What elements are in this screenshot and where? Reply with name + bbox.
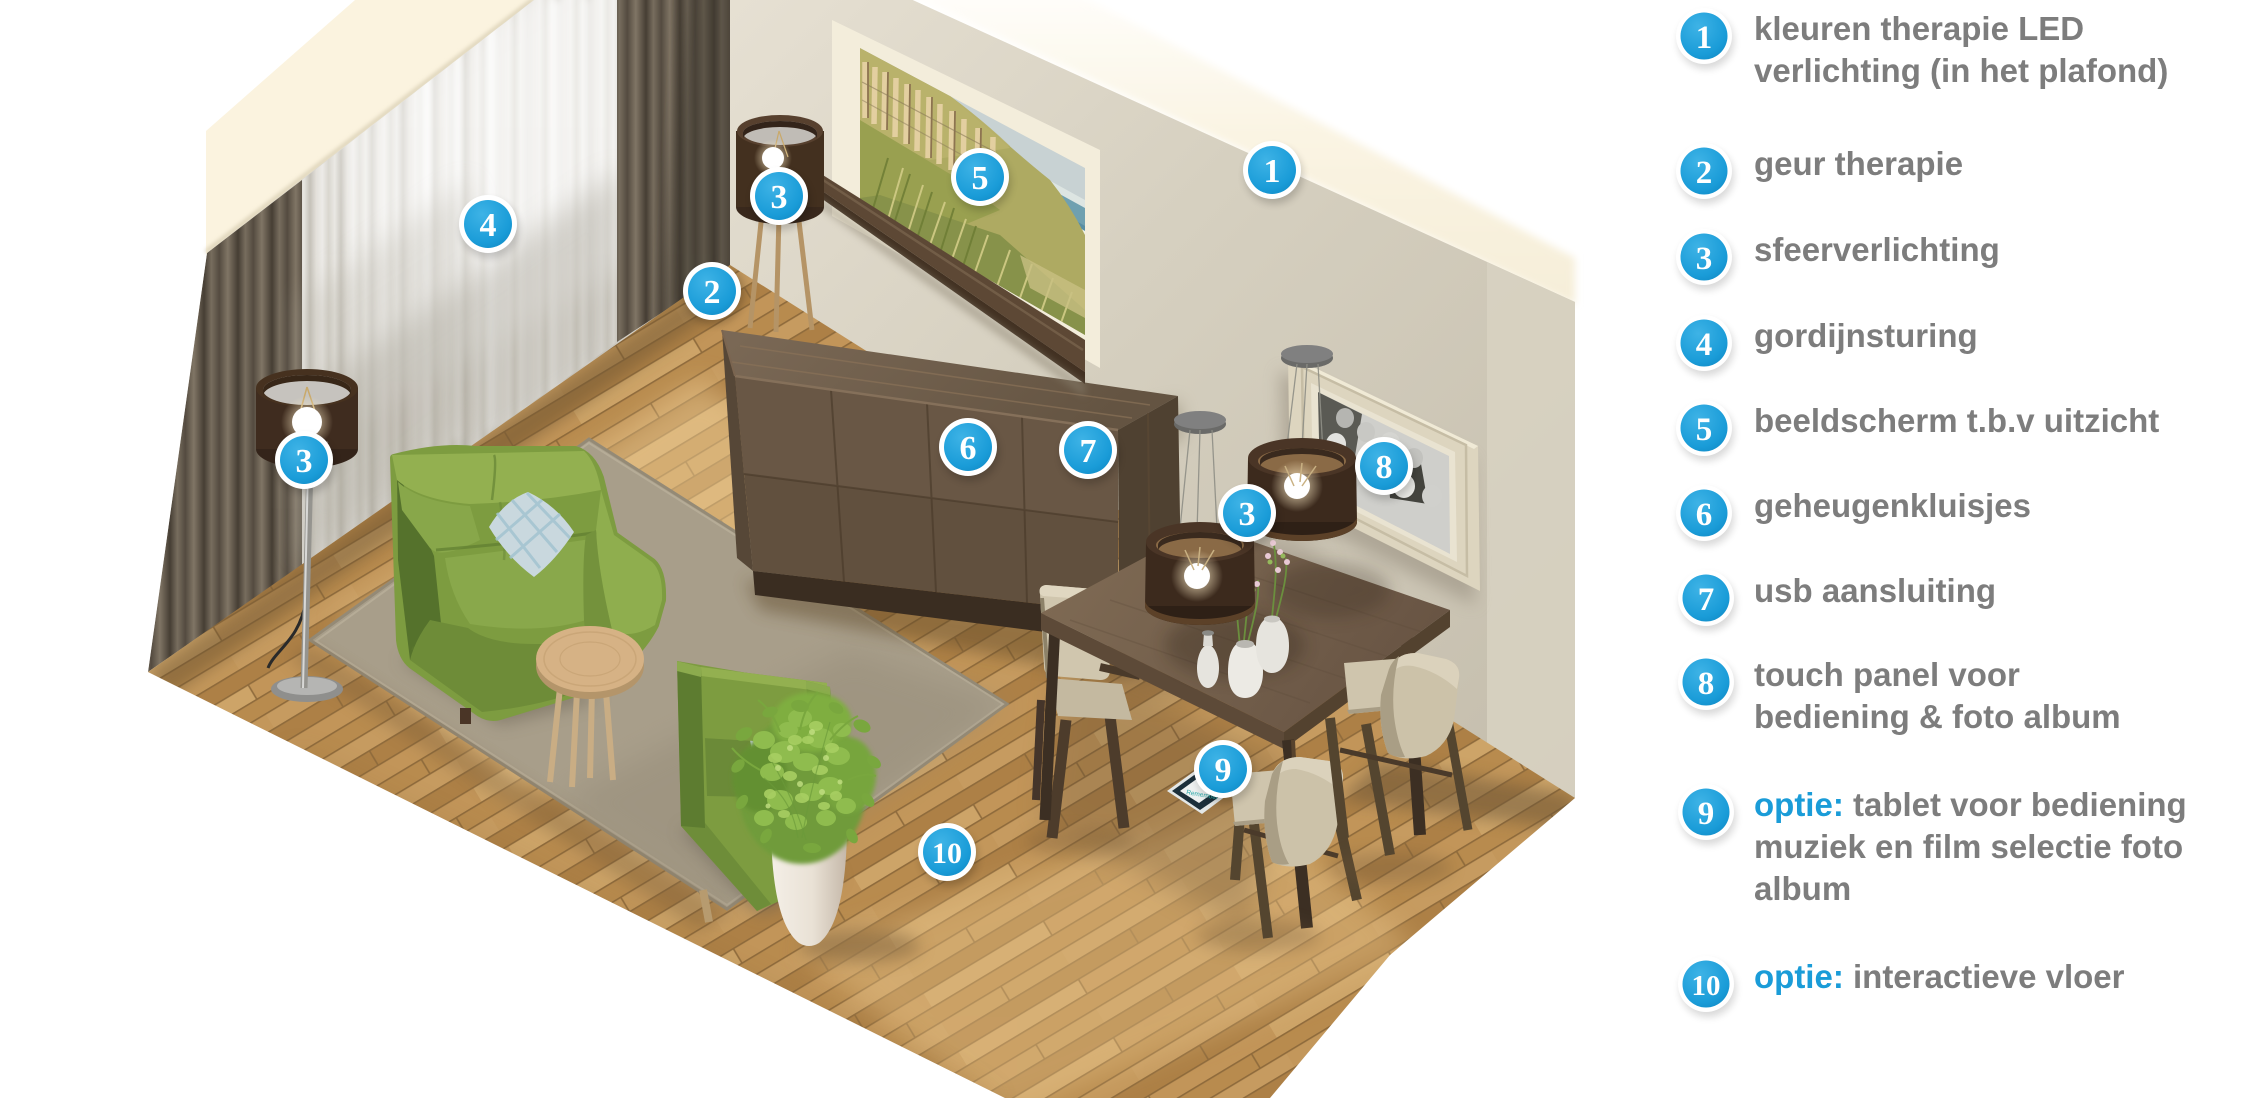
svg-text:7: 7 bbox=[1698, 582, 1715, 618]
svg-text:beeldscherm t.b.v uitzicht: beeldscherm t.b.v uitzicht bbox=[1754, 402, 2159, 439]
svg-text:6: 6 bbox=[960, 430, 977, 467]
svg-text:kleuren therapie LED: kleuren therapie LED bbox=[1754, 10, 2084, 47]
svg-text:3: 3 bbox=[296, 443, 313, 480]
svg-text:muziek en film selectie foto: muziek en film selectie foto bbox=[1754, 828, 2183, 865]
svg-text:3: 3 bbox=[1239, 496, 1256, 533]
svg-text:4: 4 bbox=[480, 207, 497, 244]
svg-text:8: 8 bbox=[1698, 666, 1715, 702]
svg-text:verlichting (in het plafond): verlichting (in het plafond) bbox=[1754, 52, 2168, 89]
svg-text:1: 1 bbox=[1696, 20, 1713, 56]
svg-text:3: 3 bbox=[1696, 241, 1713, 277]
svg-text:2: 2 bbox=[704, 274, 721, 311]
svg-text:9: 9 bbox=[1698, 796, 1715, 832]
svg-text:geheugenkluisjes: geheugenkluisjes bbox=[1754, 487, 2031, 524]
svg-text:10: 10 bbox=[1692, 970, 1721, 1002]
svg-text:1: 1 bbox=[1264, 153, 1281, 190]
svg-text:sfeerverlichting: sfeerverlichting bbox=[1754, 231, 2000, 268]
svg-text:6: 6 bbox=[1696, 497, 1713, 533]
svg-text:optie: interactieve vloer: optie: interactieve vloer bbox=[1754, 958, 2125, 995]
svg-text:5: 5 bbox=[972, 160, 989, 197]
svg-text:geur therapie: geur therapie bbox=[1754, 145, 1963, 182]
svg-text:7: 7 bbox=[1080, 433, 1097, 470]
svg-text:2: 2 bbox=[1696, 155, 1713, 191]
svg-text:usb aansluiting: usb aansluiting bbox=[1754, 572, 1996, 609]
svg-text:5: 5 bbox=[1696, 412, 1713, 448]
svg-text:10: 10 bbox=[932, 837, 962, 870]
svg-text:4: 4 bbox=[1696, 327, 1713, 363]
svg-text:9: 9 bbox=[1215, 752, 1232, 789]
svg-text:touch panel voor: touch panel voor bbox=[1754, 656, 2020, 693]
svg-text:optie: tablet voor bediening: optie: tablet voor bediening bbox=[1754, 786, 2187, 823]
svg-text:bediening & foto album: bediening & foto album bbox=[1754, 698, 2121, 735]
svg-text:3: 3 bbox=[771, 179, 788, 216]
svg-text:8: 8 bbox=[1376, 449, 1393, 486]
svg-text:gordijnsturing: gordijnsturing bbox=[1754, 317, 1978, 354]
svg-text:album: album bbox=[1754, 870, 1851, 907]
